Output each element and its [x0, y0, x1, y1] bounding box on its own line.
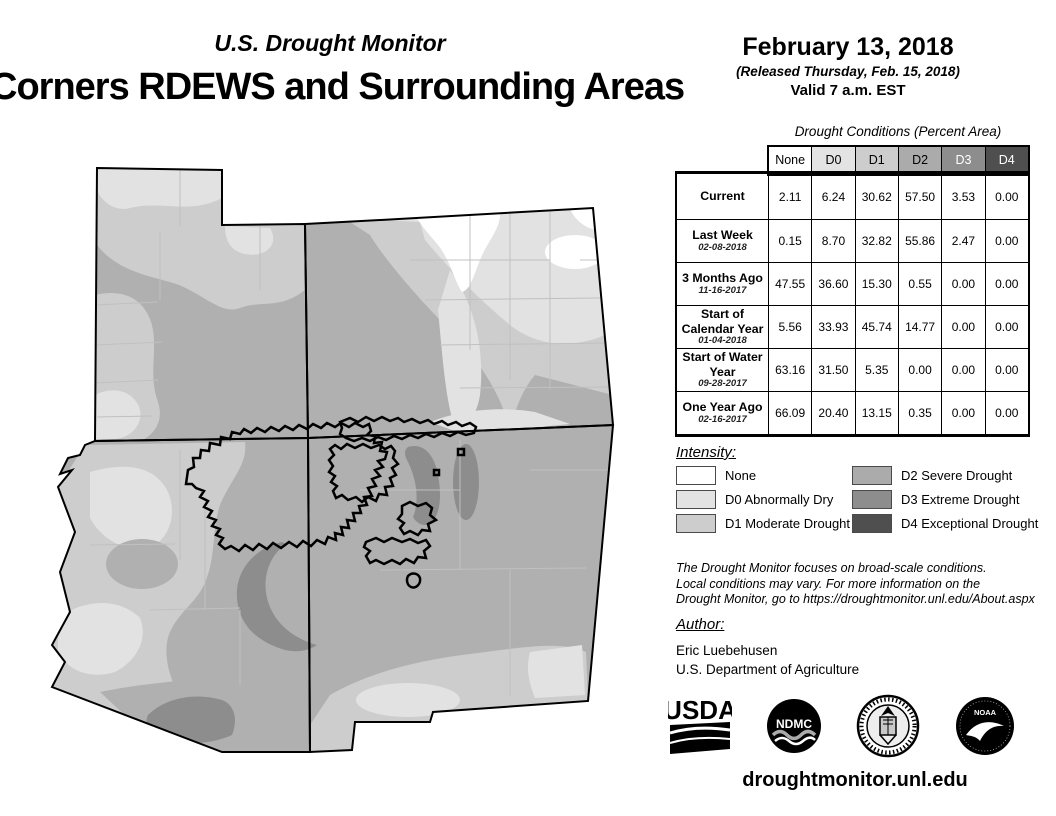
usda-logo-icon: USDA [668, 697, 732, 755]
swatch-d4 [852, 514, 892, 533]
row-label: Start of Water Year09-28-2017 [677, 349, 769, 392]
ndmc-logo-icon: NDMC [765, 697, 823, 755]
row-label: Last Week02-08-2018 [677, 220, 769, 263]
date-block: February 13, 2018 (Released Thursday, Fe… [640, 33, 1056, 99]
svg-text:NOAA: NOAA [974, 708, 997, 717]
svg-text:NDMC: NDMC [776, 717, 812, 731]
row-label: One Year Ago02-16-2017 [677, 392, 769, 435]
table-row: Current 2.11 6.24 30.62 57.50 3.53 0.00 [677, 174, 1029, 220]
release-date: (Released Thursday, Feb. 15, 2018) [640, 64, 1056, 79]
col-header-d1: D1 [855, 147, 898, 174]
swatch-d3 [852, 490, 892, 509]
drought-conditions-table: None D0 D1 D2 D3 D4 Current 2.11 6.24 30… [676, 146, 1029, 435]
col-header-d2: D2 [898, 147, 941, 174]
col-header-none: None [769, 147, 812, 174]
svg-text:USDA: USDA [668, 697, 732, 725]
table-row: 3 Months Ago11-16-2017 47.55 36.60 15.30… [677, 263, 1029, 306]
disclaimer-text: The Drought Monitor focuses on broad-sca… [676, 561, 1035, 608]
map-date: February 13, 2018 [640, 33, 1056, 62]
swatch-d2 [852, 466, 892, 485]
monitor-title: U.S. Drought Monitor [0, 30, 660, 57]
row-label: Start of Calendar Year01-04-2018 [677, 306, 769, 349]
commerce-seal-icon [855, 694, 921, 758]
valid-time: Valid 7 a.m. EST [640, 82, 1056, 99]
table-row: One Year Ago02-16-2017 66.09 20.40 13.15… [677, 392, 1029, 435]
noaa-logo-icon: NOAA [954, 695, 1016, 757]
row-label: 3 Months Ago11-16-2017 [677, 263, 769, 306]
table-row: Last Week02-08-2018 0.15 8.70 32.82 55.8… [677, 220, 1029, 263]
swatch-none [676, 466, 716, 485]
row-label: Current [677, 174, 769, 220]
swatch-d0 [676, 490, 716, 509]
table-row: Start of Calendar Year01-04-2018 5.56 33… [677, 306, 1029, 349]
author-heading: Author: [676, 616, 724, 633]
drought-map [30, 140, 660, 800]
footer-url: droughtmonitor.unl.edu [690, 769, 1020, 792]
legend-title: Intensity: [676, 444, 736, 461]
table-corner-cell [677, 147, 769, 174]
legend-item-d3: D3 Extreme Drought [852, 490, 1020, 509]
table-caption: Drought Conditions (Percent Area) [768, 124, 1028, 139]
author-name: Eric Luebehusen [676, 643, 777, 658]
col-header-d4: D4 [985, 147, 1028, 174]
col-header-d3: D3 [942, 147, 985, 174]
map-title: Corners RDEWS and Surrounding Areas [0, 66, 684, 109]
legend-item-d1: D1 Moderate Drought [676, 514, 850, 533]
table-row: Start of Water Year09-28-2017 63.16 31.5… [677, 349, 1029, 392]
legend-item-d4: D4 Exceptional Drought [852, 514, 1038, 533]
legend-item-none: None [676, 466, 756, 485]
author-organization: U.S. Department of Agriculture [676, 662, 859, 677]
logo-row: USDA NDMC NOAA [668, 694, 1016, 758]
legend-item-d2: D2 Severe Drought [852, 466, 1012, 485]
legend-item-d0: D0 Abnormally Dry [676, 490, 833, 509]
col-header-d0: D0 [812, 147, 855, 174]
swatch-d1 [676, 514, 716, 533]
